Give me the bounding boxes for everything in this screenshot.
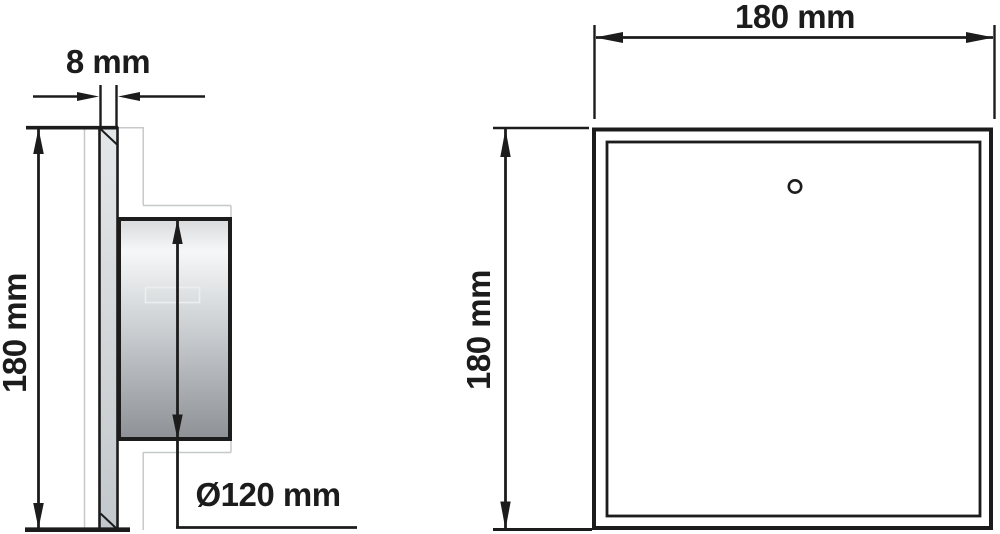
dim-height-label-front-view: 180 mm <box>462 255 496 405</box>
arrowhead-left-icon <box>595 32 623 43</box>
arrowhead-down-icon <box>500 502 510 530</box>
dim-thickness-label: 8 mm <box>38 45 178 79</box>
screw-hole-icon <box>789 180 801 192</box>
front-panel <box>594 130 991 529</box>
arrowhead-up-icon <box>500 129 510 157</box>
arrowhead-right-icon <box>966 32 994 43</box>
dim-height-label-side-view: 180 mm <box>0 258 32 408</box>
front-view-drawing <box>0 0 1000 534</box>
front-panel-inner-frame <box>607 142 980 516</box>
dimension-width-180mm-front <box>595 25 995 119</box>
technical-drawing-canvas: 8 mm 180 mm Ø120 mm 180 mm 180 mm <box>0 0 1000 534</box>
dimension-height-180mm-front <box>493 128 592 530</box>
dim-diameter-label: Ø120 mm <box>193 478 343 512</box>
dim-width-label-front-view: 180 mm <box>720 0 870 34</box>
